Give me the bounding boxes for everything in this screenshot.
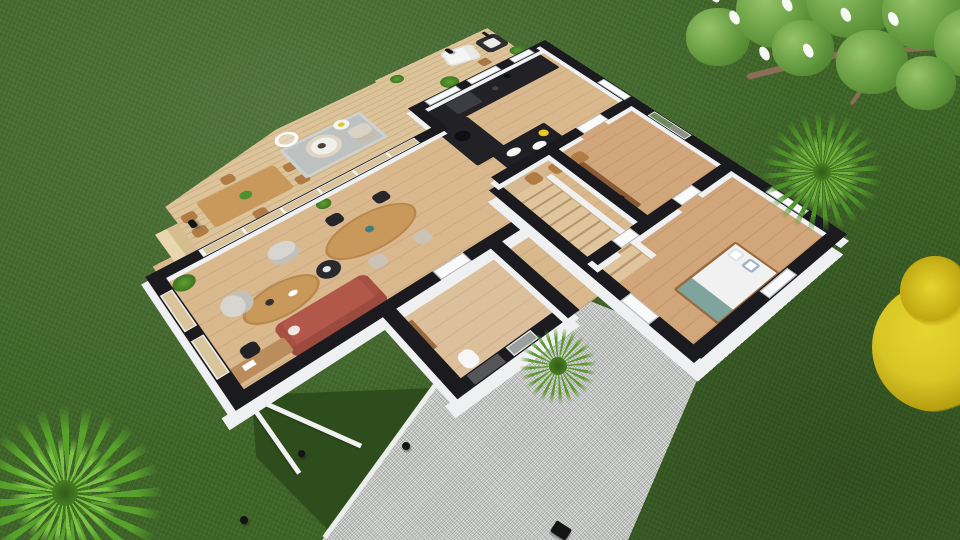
garden-light <box>298 450 305 457</box>
tree-foliage <box>772 20 834 76</box>
garden-scene <box>0 0 960 540</box>
gravel-grass-tuft <box>520 328 596 404</box>
garden-light <box>240 516 248 524</box>
tree-foliage <box>896 56 956 110</box>
garden-light <box>402 442 410 450</box>
tree-blossoms <box>707 0 722 4</box>
